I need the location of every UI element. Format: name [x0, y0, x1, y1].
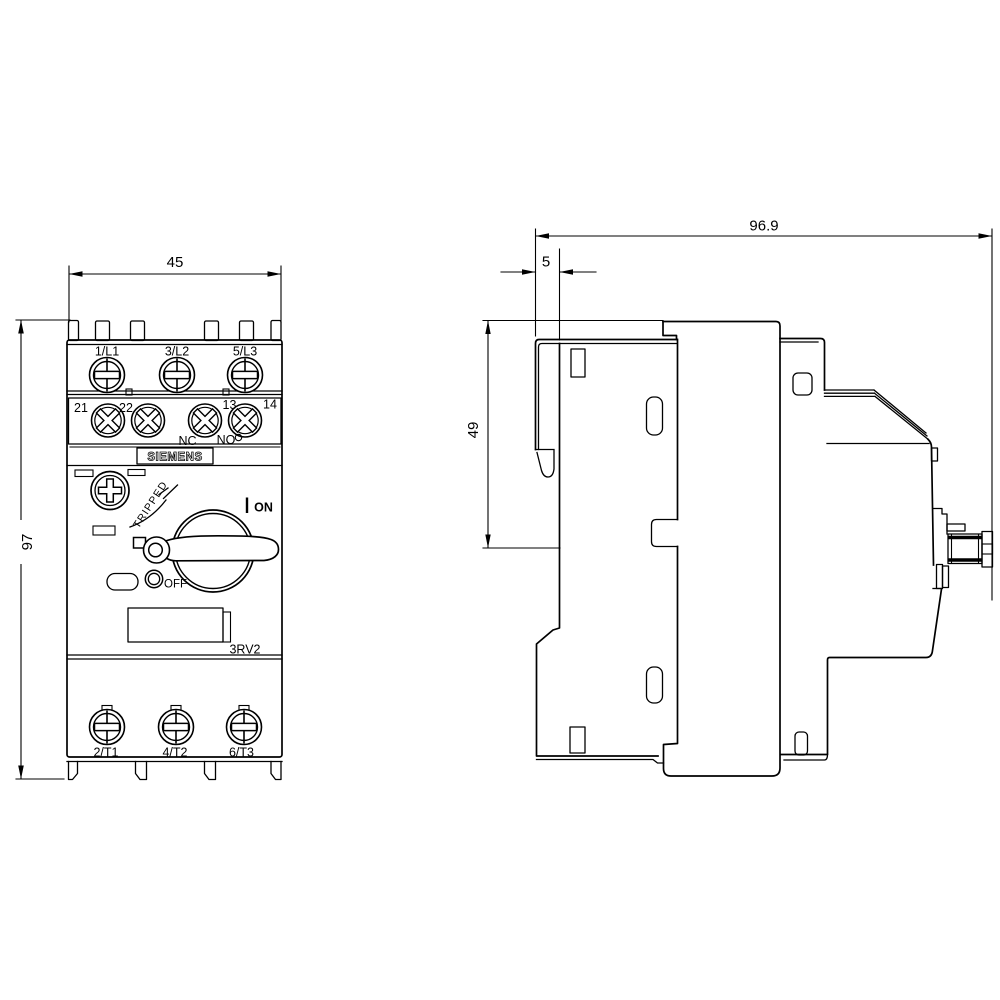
dimension-upper-height: 49: [465, 321, 663, 549]
screw-1L1: [90, 358, 125, 393]
side-profile: [536, 322, 993, 777]
terminal-label-3L2: 3/L2: [165, 345, 189, 359]
rail-groove: [652, 520, 678, 547]
screw-4T2: [159, 710, 194, 745]
line-terminal-screws: [90, 358, 263, 393]
screw-6T3: [227, 710, 262, 745]
dimension-depth: 96.9: [536, 218, 993, 601]
operating-section: TRIPPED ON OFF 3RV2: [75, 470, 279, 657]
terminal-label-2T1: 2/T1: [93, 746, 118, 760]
dimension-height: 97: [13, 320, 70, 779]
din-clip-hook: [536, 450, 555, 478]
terminal-label-5L3: 5/L3: [233, 345, 257, 359]
aux-label-21: 21: [74, 401, 88, 415]
top-mount-tabs: [69, 321, 282, 341]
screw-22: [129, 401, 167, 439]
current-adjust-dial[interactable]: [91, 472, 129, 510]
housing-openings: [570, 349, 812, 755]
model-label: 3RV2: [229, 643, 260, 657]
load-terminal-screws: [90, 710, 262, 745]
knob-handle[interactable]: [163, 536, 279, 561]
aux-label-14: 14: [263, 398, 277, 412]
terminal-label-4T2: 4/T2: [162, 746, 187, 760]
tripped-label: TRIPPED: [131, 479, 170, 531]
dim-height-value: 97: [19, 534, 36, 551]
dimension-width: 45: [69, 254, 281, 322]
vent-ribs: [825, 390, 929, 439]
drawing-canvas: 45 97: [0, 0, 1000, 1000]
aux-label-13: 13: [223, 398, 237, 412]
on-label: ON: [254, 501, 273, 515]
brand-label: SIEMENS: [147, 452, 202, 464]
terminal-label-6T3: 6/T3: [229, 746, 254, 760]
aux-label-22: 22: [119, 401, 133, 415]
bottom-mount-tabs: [69, 762, 282, 780]
knob-front-cap: [982, 532, 993, 568]
off-label: OFF: [164, 579, 187, 591]
rating-label-tab: [223, 612, 231, 642]
screw-2T1: [90, 710, 125, 745]
aux-label-no: NO: [217, 433, 236, 447]
dim-upper-height-value: 49: [465, 422, 482, 439]
test-button[interactable]: [107, 574, 138, 591]
dimension-clip: 5: [501, 249, 596, 340]
front-view: 45 97: [13, 254, 282, 780]
dim-depth-value: 96.9: [749, 218, 778, 235]
terminal-label-1L1: 1/L1: [95, 345, 119, 359]
side-view: 96.9 5 49: [465, 218, 993, 777]
aux-label-nc: NC: [178, 434, 196, 448]
technical-drawing: 45 97: [0, 0, 1000, 1000]
knob-side-profile: [933, 509, 993, 589]
screw-3L2: [160, 358, 195, 393]
rating-label-field: [128, 608, 223, 642]
knob-pivot: [144, 537, 170, 563]
dim-width-value: 45: [167, 254, 184, 271]
dim-clip-value: 5: [542, 254, 550, 271]
screw-5L3: [228, 358, 263, 393]
